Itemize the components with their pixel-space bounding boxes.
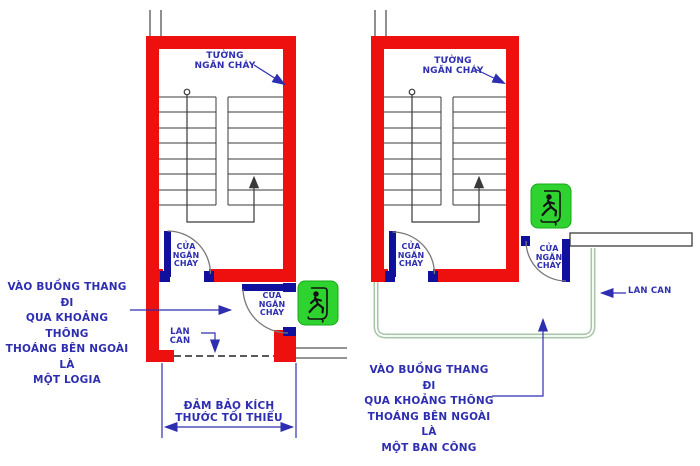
railing-leader-line <box>201 333 215 351</box>
railing-label-left: LAN CAN <box>160 328 200 347</box>
exterior-door-label-left: CỬA NGĂN CHÁY <box>254 292 290 318</box>
exit-sign-icon <box>298 281 338 325</box>
fire-wall-label-left: TƯỜNG NGĂN CHÁY <box>194 52 256 71</box>
exit-sign-icon <box>531 184 571 228</box>
fire-wall-leader-line <box>254 65 284 84</box>
fire-wall-label-right: TƯỜNG NGĂN CHÁY <box>422 57 484 76</box>
left-plan <box>130 10 347 438</box>
interior-door-label-right: CỬA NGĂN CHÁY <box>394 243 428 269</box>
exterior-door-label-right: CỬA NGĂN CHÁY <box>532 245 566 271</box>
railing-label-right: LAN CAN <box>628 287 674 296</box>
left-caption: VÀO BUỒNG THANG ĐI QUA KHOẢNG THÔNG THOÁ… <box>3 280 131 389</box>
right-plan <box>371 10 692 396</box>
diagram-canvas: TƯỜNG NGĂN CHÁY CỬA NGĂN CHÁY CỬA NGĂN C… <box>0 0 700 466</box>
plan-drawing <box>0 0 700 466</box>
wall-extension-lines <box>150 10 161 36</box>
stair-flights <box>384 97 506 205</box>
adjacent-wall-lines <box>296 348 347 358</box>
dimension-label: ĐẢM BẢO KÍCH THƯỚC TỐI THIỂU <box>165 400 293 424</box>
stair-flights <box>159 97 283 205</box>
stair-walking-line <box>409 89 479 222</box>
balcony-slab <box>570 233 692 246</box>
caption-arrow <box>492 320 543 396</box>
stair-walking-line <box>184 89 254 222</box>
wall-extension-lines <box>375 10 386 36</box>
right-caption: VÀO BUỒNG THANG ĐI QUA KHOẢNG THÔNG THOÁ… <box>364 363 494 456</box>
interior-door-label-left: CỬA NGĂN CHÁY <box>169 243 203 269</box>
